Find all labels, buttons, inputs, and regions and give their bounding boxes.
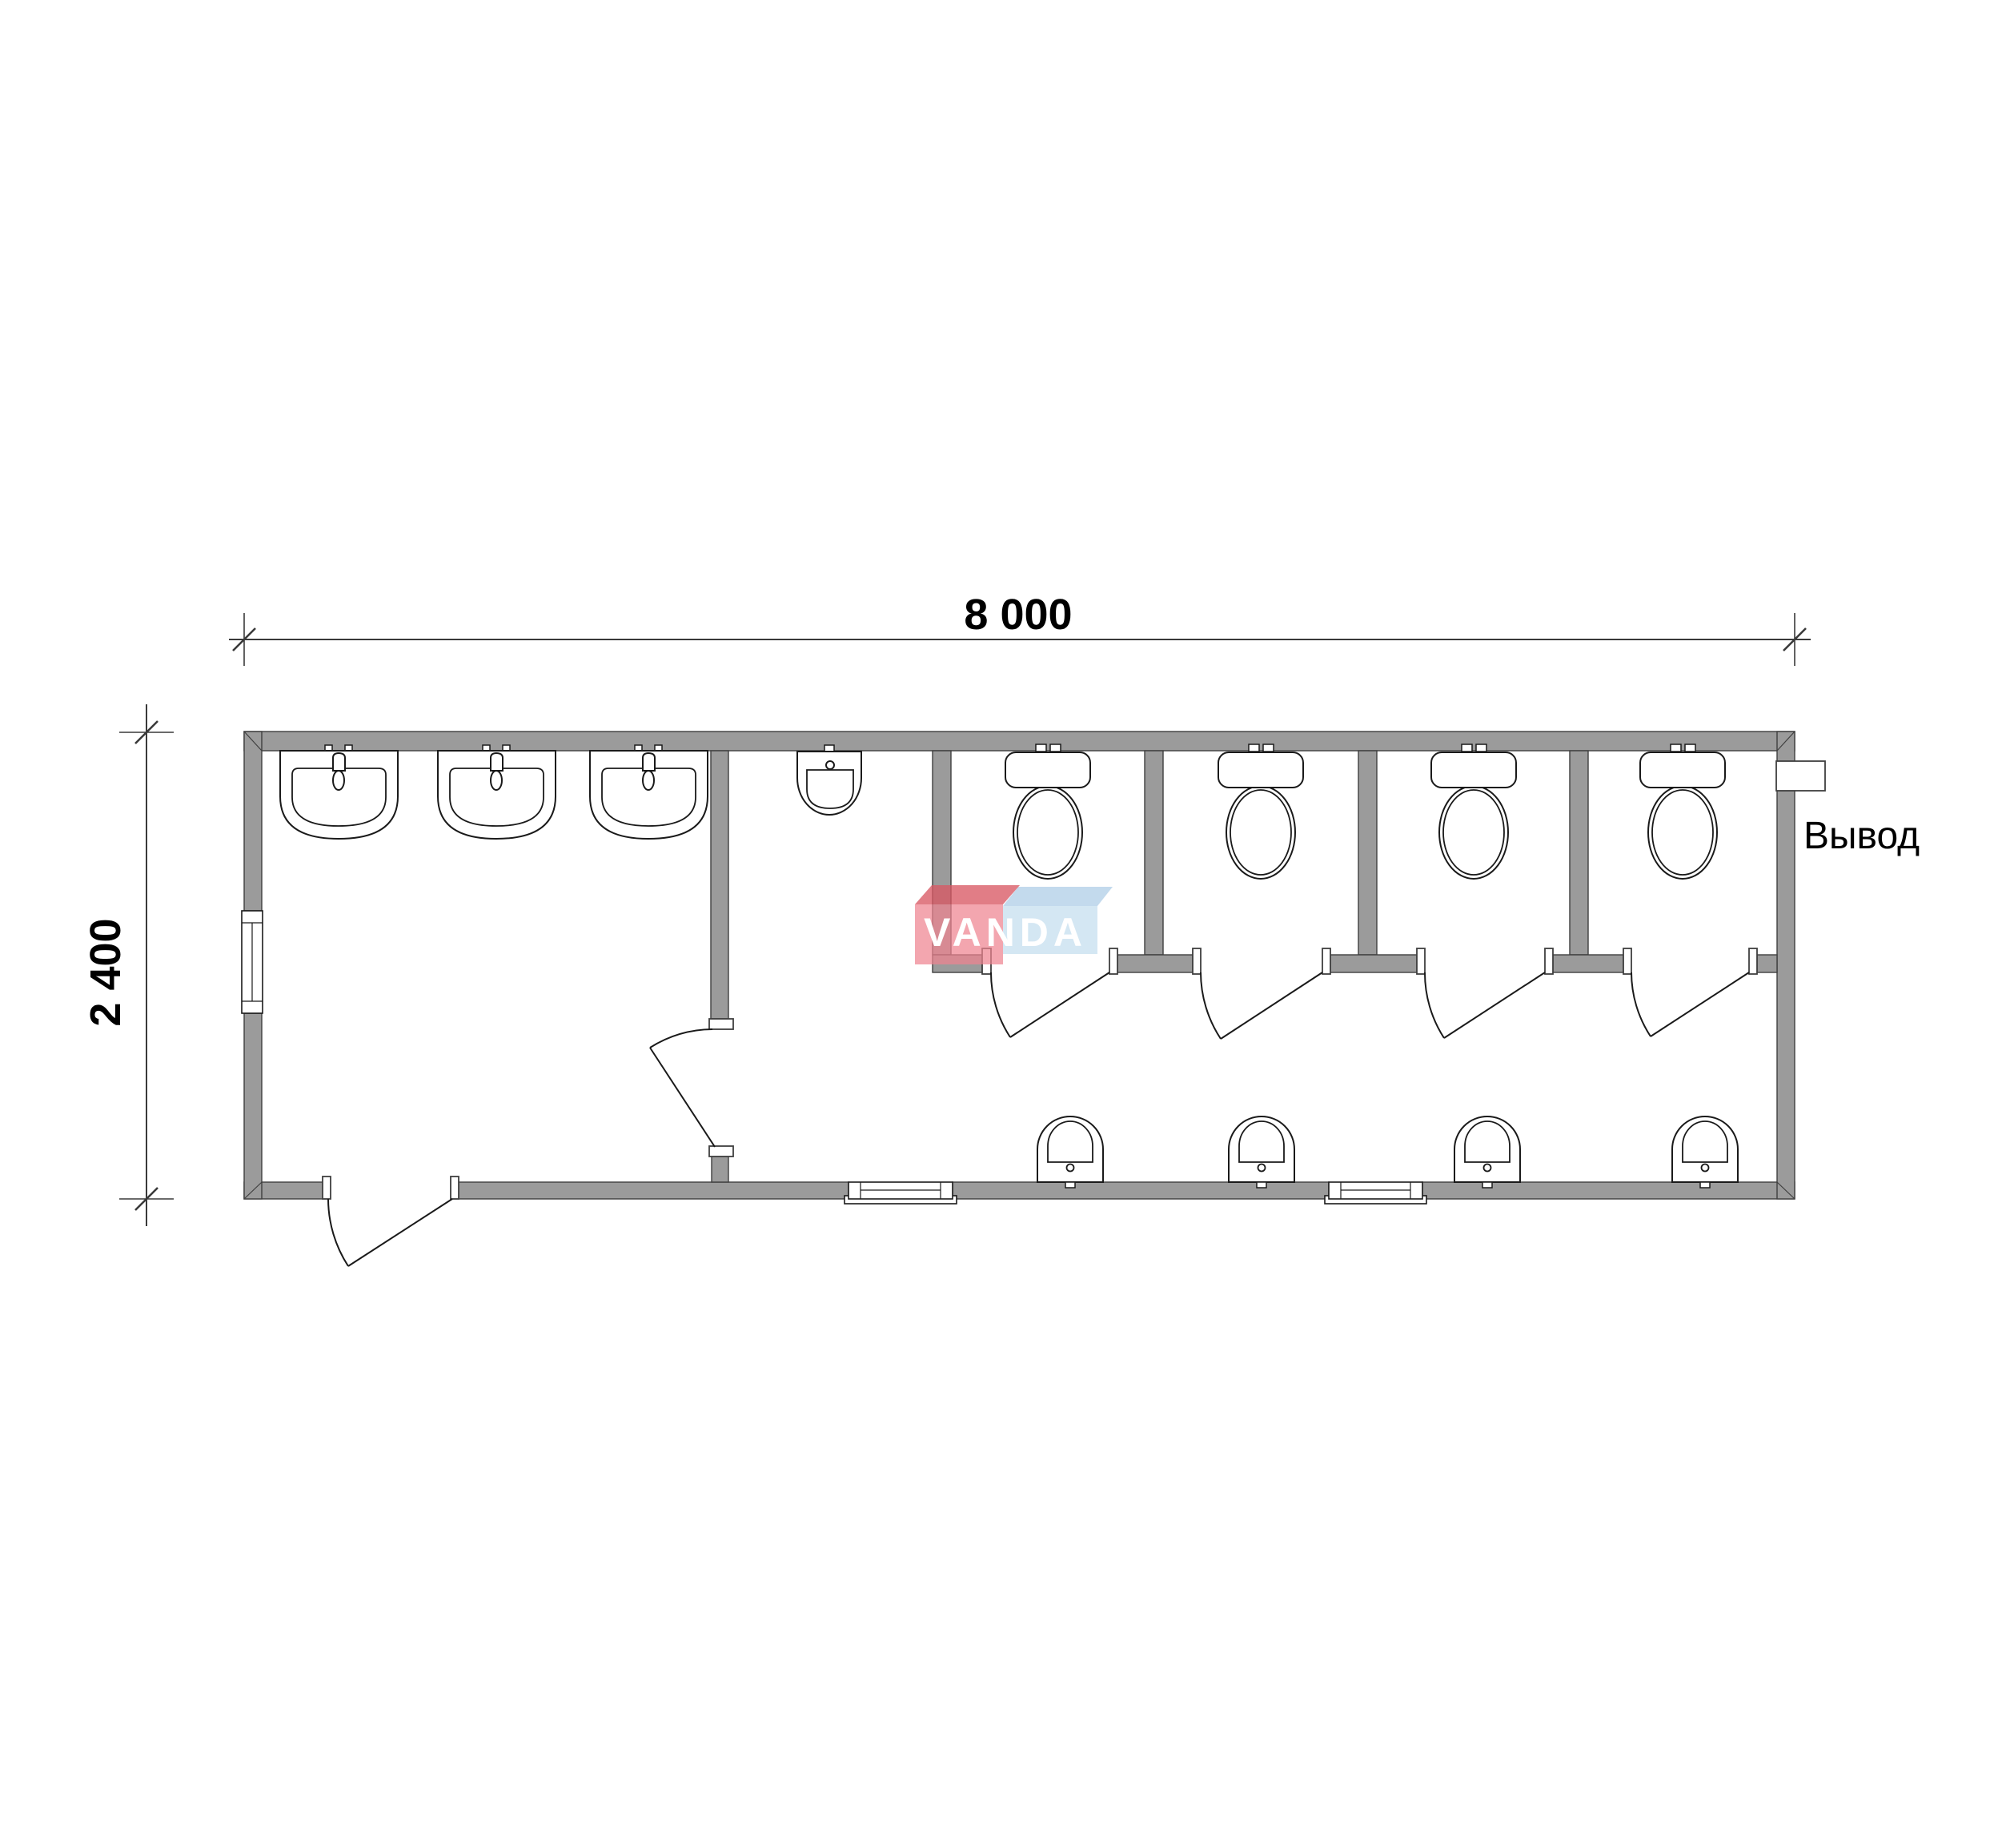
stall-door-2	[1201, 972, 1322, 1039]
outlet-label: Вывод	[1803, 815, 1920, 857]
window-bottom-2	[1325, 1182, 1426, 1204]
floor-plan-drawing: 8 000 2 400	[0, 0, 2014, 1848]
vanda-watermark-text: VANDA	[924, 910, 1087, 955]
partition-washroom	[709, 751, 733, 1182]
washroom-door	[650, 1029, 715, 1147]
floor-urinal-4	[1672, 1116, 1738, 1188]
toilet-2	[1218, 744, 1303, 879]
dimension-width: 8 000	[229, 591, 1811, 666]
washbasin-2	[438, 745, 556, 839]
wall-urinal	[797, 745, 861, 815]
toilet-4	[1640, 744, 1725, 879]
washbasin-3	[590, 745, 708, 839]
dimension-width-label: 8 000	[964, 591, 1072, 639]
stall-door-1	[991, 972, 1109, 1037]
washbasin-1	[280, 745, 398, 839]
dimension-height: 2 400	[82, 704, 174, 1226]
sewer-outlet: Вывод	[1776, 761, 1920, 857]
floor-plan-page: 8 000 2 400	[0, 0, 2014, 1848]
window-left-wall	[242, 911, 263, 1013]
vanda-watermark: VANDA	[915, 885, 1113, 964]
entrance-door	[323, 1177, 459, 1266]
toilet-3	[1431, 744, 1516, 879]
stall-door-3	[1425, 972, 1545, 1038]
toilet-1	[1005, 744, 1090, 879]
stall-door-4	[1631, 972, 1749, 1036]
floor-urinal-1	[1037, 1116, 1103, 1188]
window-bottom-1	[845, 1182, 957, 1204]
floor-urinal-3	[1454, 1116, 1520, 1188]
floor-urinal-2	[1229, 1116, 1294, 1188]
dimension-height-label: 2 400	[82, 918, 130, 1026]
